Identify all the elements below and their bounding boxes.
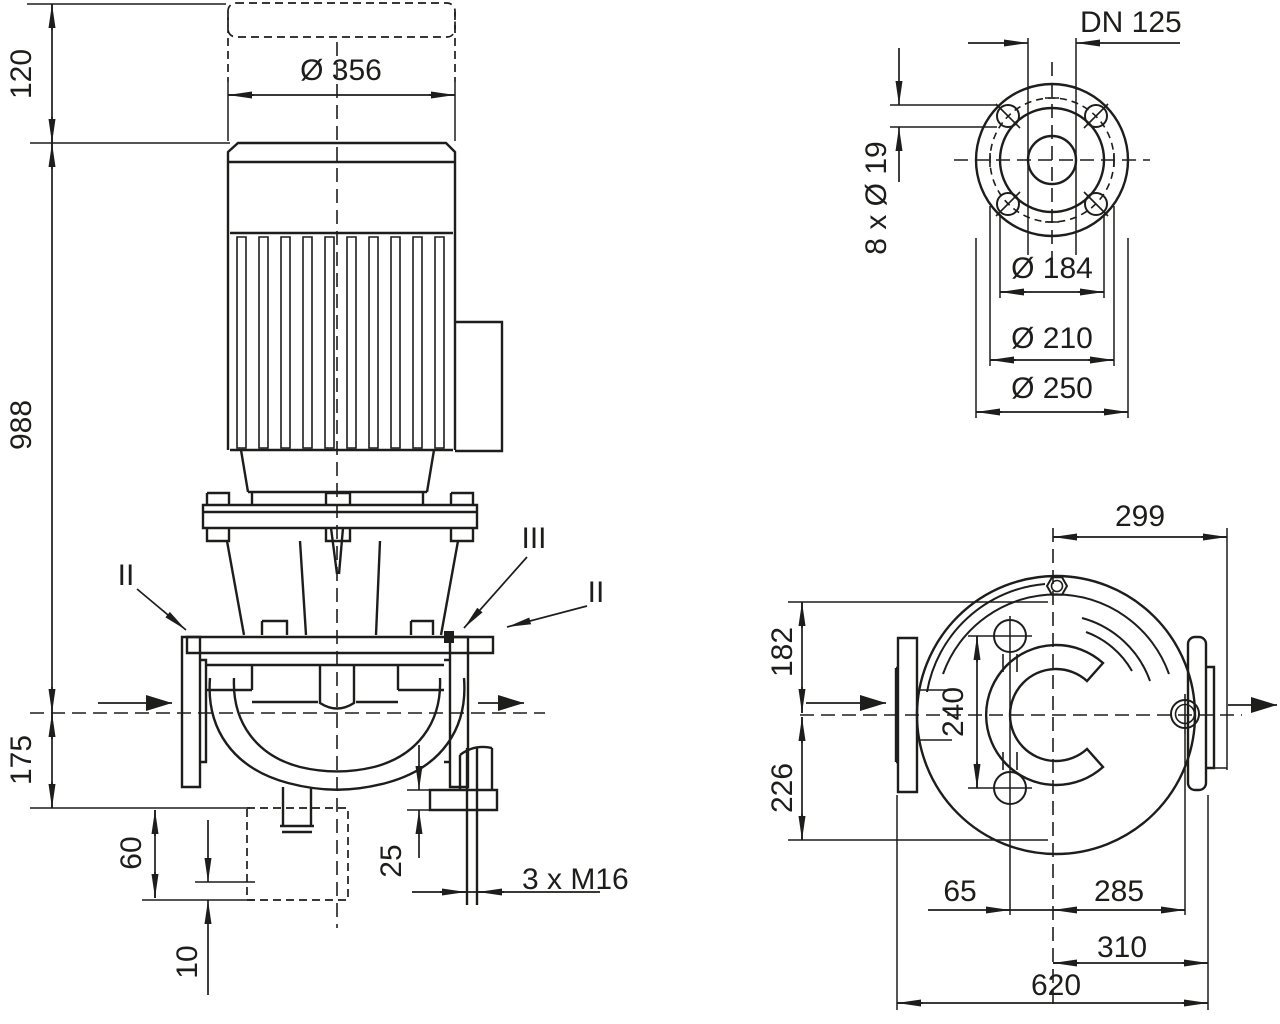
dim-label-310: 310 [1097,931,1147,964]
vent-plug-circle [1052,581,1063,592]
motor-body [228,143,502,451]
section-label-left: II [118,559,135,592]
dim-label-studs: 3 x M16 [522,863,629,896]
dim-label-25: 25 [375,844,408,877]
dim-label-299: 299 [1115,500,1165,533]
dim-label-240: 240 [937,687,970,737]
flange-crosshair [954,62,1150,258]
motor-removal-space [228,3,455,37]
drawing-canvas: 120 988 175 60 10 25 Ø 356 3 x M16 II II… [0,0,1280,1024]
dim-label-226: 226 [766,763,799,813]
pump-casing [182,637,468,832]
dim-label-motor-dia: Ø 356 [300,54,382,87]
section-leader-left [137,589,186,630]
dim-label-620: 620 [1031,969,1081,1002]
dim-label-bolt-holes: 8 x Ø 19 [860,141,893,254]
support-foot [430,747,497,905]
lantern [227,528,458,635]
dim-label-250: Ø 250 [1011,372,1093,405]
motor-stool-flange [203,493,477,541]
dim-label-60: 60 [115,836,148,869]
dim-label-182: 182 [766,627,799,677]
flange-view: DN 125 8 x Ø 19 Ø 184 Ø 210 Ø 250 [860,6,1182,418]
plan-view: 299 182 226 240 65 285 310 620 [766,500,1277,1010]
dim-label-10: 10 [171,945,204,978]
dim-label-184: Ø 184 [1011,252,1093,285]
motor-fins [237,237,444,448]
section-label-right: II [588,576,605,609]
foundation-block [247,808,348,900]
dim-label-clearance: 120 [5,49,38,99]
dim-label-center-base: 175 [5,735,38,785]
dim-label-210: Ø 210 [1011,322,1093,355]
dim-label-height: 988 [5,400,38,450]
section-label-center: III [521,522,546,555]
plan-extension-lines [788,528,1227,1010]
dim-label-65: 65 [943,875,976,908]
section-leader-right [507,606,587,627]
dim-label-dn: DN 125 [1080,6,1182,39]
pump-dimensional-drawing: 120 988 175 60 10 25 Ø 356 3 x M16 II II… [0,0,1280,1024]
section-leader-center [464,557,527,628]
dim-label-285: 285 [1094,875,1144,908]
side-view: 120 988 175 60 10 25 Ø 356 3 x M16 II II… [5,3,629,995]
discharge-flange [1188,637,1206,790]
